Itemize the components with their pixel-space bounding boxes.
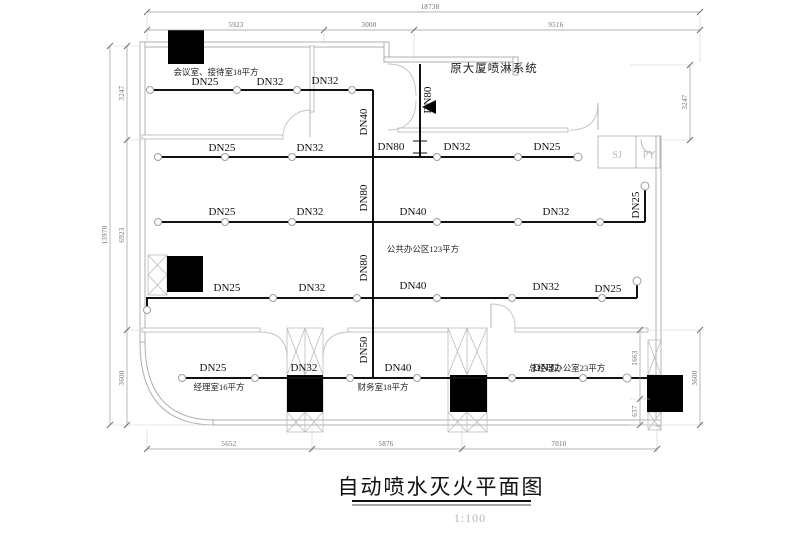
pipe-label: DN32 — [533, 281, 560, 293]
pipe-label: DN25 — [534, 141, 561, 153]
pipe-label: DN40 — [400, 280, 427, 292]
pipe-label: DN25 — [214, 282, 241, 294]
riser-label: DN50 — [358, 336, 370, 363]
room-label-finance: 财务室18平方 — [357, 382, 408, 392]
sprinkler-plan-svg: SJ PY — [0, 0, 800, 533]
riser-label: DN80 — [358, 254, 370, 281]
dim-left-seg: 3247 — [118, 85, 126, 100]
pipe-label: DN25 — [192, 76, 219, 88]
riser-label: DN40 — [358, 108, 370, 135]
dim-right-bottom: 3600 — [691, 370, 699, 385]
dim-right-top: 3247 — [681, 94, 689, 109]
pipe-label: DN40 — [385, 362, 412, 374]
room-label-manager: 经理室16平方 — [193, 382, 244, 392]
drawing-title: 自动喷水灭火平面图 — [338, 475, 545, 499]
riser-label: DN80 — [358, 184, 370, 211]
shaft-py-label: PY — [643, 150, 656, 161]
pipe-label: DN40 — [400, 206, 427, 218]
drawing-canvas: SJ PY — [0, 0, 800, 533]
drawing-scale: 1:100 — [454, 511, 486, 525]
dim-bottom-seg: 7010 — [551, 440, 566, 448]
dim-right-low: 637 — [631, 405, 639, 417]
pipe-label: DN25 — [595, 283, 622, 295]
pipe-label: DN25 — [630, 191, 642, 218]
dim-top-total: 18738 — [421, 3, 440, 11]
dim-left-total: 13970 — [101, 225, 109, 244]
pipe-label: DN25 — [200, 362, 227, 374]
pipe-label: DN32 — [444, 141, 471, 153]
pipe-label: DN32 — [312, 75, 339, 87]
sprinkler-heads — [144, 87, 650, 383]
room-label-public-office: 公共办公区123平方 — [387, 244, 459, 254]
dim-bottom-seg: 5652 — [221, 440, 236, 448]
shaft-sj-label: SJ — [612, 150, 622, 161]
dim-left-seg: 6923 — [118, 227, 126, 242]
room-labels: 会议室、接待室18平方 原大厦喷淋系统 公共办公区123平方 经理室16平方 财… — [173, 61, 605, 392]
pipe-label: DN32 — [291, 362, 318, 374]
pipe-label: DN32 — [543, 206, 570, 218]
dim-right-mid: 1663 — [631, 350, 639, 365]
dim-top-seg: 5923 — [228, 21, 243, 29]
dim-top-seg: 3000 — [361, 21, 376, 29]
feed-pipe-label: DN80 — [422, 86, 434, 113]
room-label-gm-office: 总经理办公室23平方 — [529, 363, 606, 373]
pipe-label: DN80 — [378, 141, 405, 153]
dim-bottom-seg: 5876 — [378, 440, 393, 448]
pipe-label: DN32 — [297, 142, 324, 154]
dim-left-seg: 3600 — [118, 370, 126, 385]
pipe-label: DN32 — [297, 206, 324, 218]
pipe-label: DN25 — [209, 206, 236, 218]
dim-top-seg: 9516 — [548, 21, 563, 29]
room-label-existing-system: 原大厦喷淋系统 — [450, 61, 538, 75]
room-label-meeting: 会议室、接待室18平方 — [173, 67, 258, 77]
pipe-label: DN32 — [299, 282, 326, 294]
pipe-label: DN32 — [257, 76, 284, 88]
title-block: 自动喷水灭火平面图 1:100 — [338, 475, 545, 525]
pipe-label: DN25 — [209, 142, 236, 154]
